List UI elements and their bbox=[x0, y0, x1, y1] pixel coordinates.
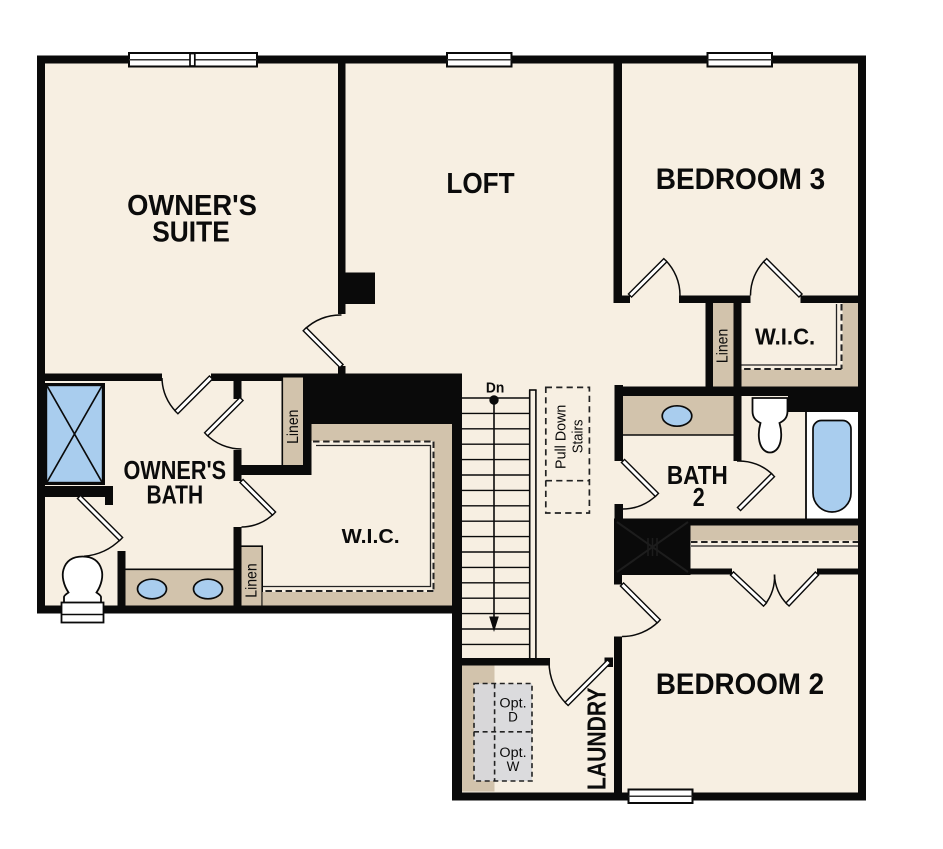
svg-text:BATH: BATH bbox=[146, 479, 203, 509]
svg-text:Linen: Linen bbox=[715, 329, 732, 363]
svg-text:Opt.: Opt. bbox=[499, 696, 526, 711]
svg-text:Opt.: Opt. bbox=[499, 745, 526, 760]
svg-text:SUITE: SUITE bbox=[152, 216, 230, 248]
svg-text:Dn: Dn bbox=[486, 380, 504, 397]
svg-text:Pull Down: Pull Down bbox=[552, 405, 569, 469]
svg-text:W: W bbox=[507, 759, 520, 774]
svg-text:LAUNDRY: LAUNDRY bbox=[584, 688, 612, 790]
svg-text:W.I.C.: W.I.C. bbox=[755, 323, 815, 349]
svg-text:2: 2 bbox=[693, 482, 705, 512]
svg-text:Linen: Linen bbox=[243, 563, 260, 597]
svg-text:BEDROOM 3: BEDROOM 3 bbox=[656, 163, 826, 196]
svg-text:Stairs: Stairs bbox=[569, 420, 586, 454]
svg-text:W.I.C.: W.I.C. bbox=[342, 525, 400, 548]
svg-text:Linen: Linen bbox=[285, 410, 302, 444]
svg-text:BEDROOM 2: BEDROOM 2 bbox=[656, 668, 824, 701]
svg-text:D: D bbox=[508, 710, 518, 725]
svg-text:LOFT: LOFT bbox=[446, 168, 515, 200]
